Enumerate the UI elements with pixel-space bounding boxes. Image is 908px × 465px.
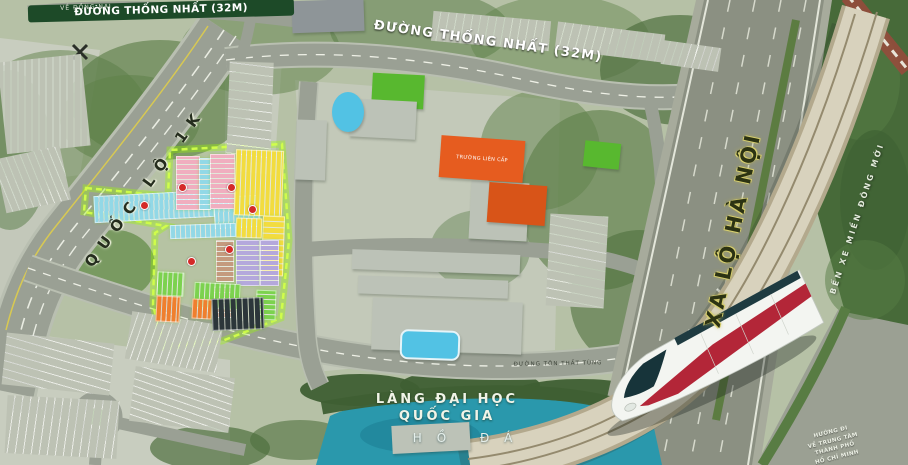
parking-block — [2, 332, 115, 395]
school-label: TRƯỜNG LIÊN CẤP — [439, 135, 526, 183]
masterplan-map: TRƯỜNG LIÊN CẤP ĐƯỜNG THỐNG NHẤT (32M) Đ… — [0, 0, 908, 465]
lot-group-purple — [260, 240, 279, 286]
lot-group-purple — [236, 240, 260, 286]
lot-group-yellow — [236, 218, 263, 239]
pond — [332, 92, 364, 132]
lot-group-orange — [155, 295, 180, 322]
lot-group-yellow — [234, 149, 284, 217]
lot-group-cyan — [170, 223, 236, 239]
label-lang-dai-hoc-line1: LÀNG ĐẠI HỌC — [352, 392, 542, 409]
sports-field — [583, 140, 622, 170]
school-building-wing — [487, 182, 548, 226]
swimming-pool — [399, 329, 460, 361]
lot-badge — [248, 205, 257, 214]
lot-group-parking-dark — [211, 297, 264, 331]
parking-block — [0, 54, 91, 154]
lot-badge — [227, 183, 236, 192]
parking-block — [5, 395, 120, 459]
lot-badge — [187, 257, 196, 266]
label-ho-da: HỒ ĐÁ — [385, 431, 555, 445]
building-row — [226, 61, 273, 162]
lot-group-pink — [210, 154, 235, 209]
lot-badge — [225, 245, 234, 254]
lot-badge — [178, 183, 187, 192]
building-row — [546, 214, 609, 309]
lot-group-green — [156, 271, 184, 296]
lot-group-orange — [191, 298, 212, 319]
label-lang-dai-hoc: LÀNG ĐẠI HỌC QUỐC GIA — [352, 392, 542, 426]
building — [295, 119, 327, 180]
school-building: TRƯỜNG LIÊN CẤP — [439, 135, 526, 183]
label-lang-dai-hoc-line2: QUỐC GIA — [352, 409, 542, 426]
